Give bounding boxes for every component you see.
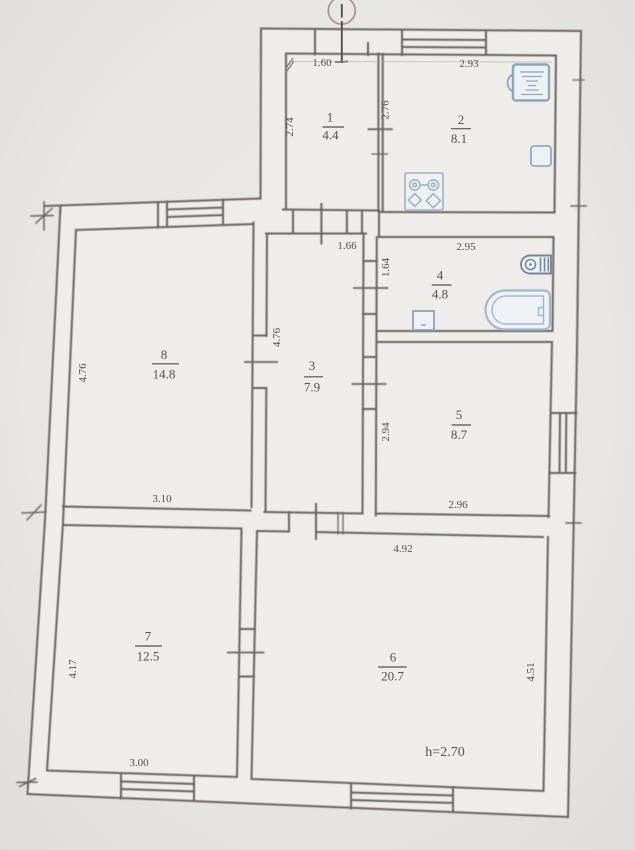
svg-text:7: 7 [145, 629, 152, 644]
svg-text:3.00: 3.00 [129, 757, 149, 769]
svg-text:2.95: 2.95 [456, 241, 476, 253]
svg-text:8.7: 8.7 [451, 427, 468, 442]
svg-text:12.5: 12.5 [137, 649, 160, 664]
svg-text:4.92: 4.92 [393, 543, 412, 555]
svg-text:8.1: 8.1 [451, 131, 467, 146]
svg-text:2.74: 2.74 [284, 117, 296, 137]
svg-text:2.94: 2.94 [380, 422, 392, 442]
svg-text:5: 5 [456, 407, 463, 422]
svg-text:14.8: 14.8 [153, 367, 176, 382]
svg-text:1.60: 1.60 [312, 57, 332, 69]
svg-text:1.66: 1.66 [337, 240, 357, 252]
svg-text:1: 1 [327, 110, 334, 125]
svg-text:20.7: 20.7 [381, 669, 404, 684]
svg-text:7.9: 7.9 [304, 380, 320, 395]
svg-text:3.10: 3.10 [152, 493, 172, 505]
svg-text:4.4: 4.4 [322, 128, 339, 143]
svg-text:4.76: 4.76 [271, 327, 283, 347]
svg-text:4.17: 4.17 [67, 659, 79, 679]
svg-text:1.64: 1.64 [380, 257, 392, 277]
svg-text:4.51: 4.51 [525, 662, 537, 681]
svg-text:2: 2 [458, 112, 465, 127]
svg-text:2.76: 2.76 [380, 100, 392, 120]
svg-text:2.93: 2.93 [459, 58, 479, 70]
svg-text:2.96: 2.96 [448, 499, 468, 511]
svg-text:8: 8 [161, 347, 168, 362]
svg-text:4: 4 [437, 268, 444, 283]
svg-text:4.76: 4.76 [77, 363, 89, 383]
svg-text:h=2.70: h=2.70 [425, 745, 464, 760]
svg-text:3: 3 [309, 358, 316, 373]
svg-text:4.8: 4.8 [432, 287, 448, 302]
svg-text:6: 6 [390, 650, 397, 665]
